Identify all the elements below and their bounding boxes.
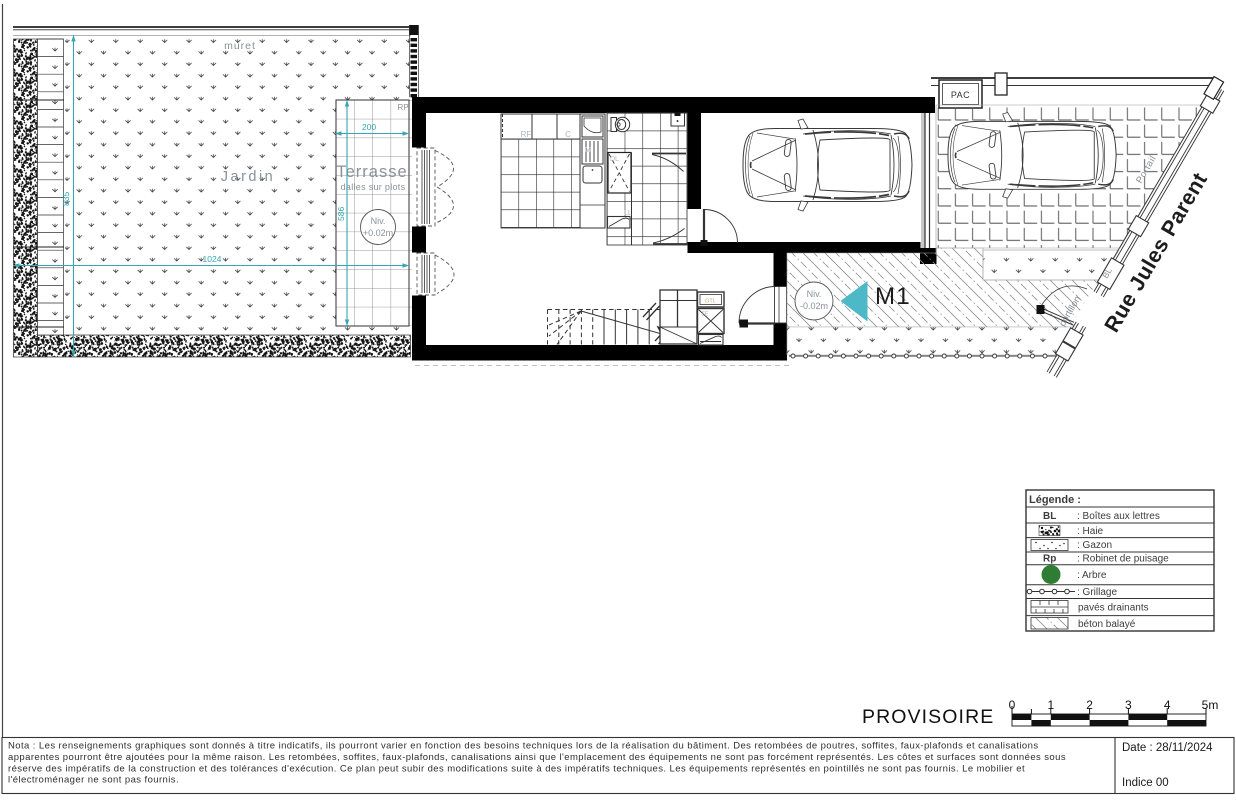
svg-text:: Grillage: : Grillage: [1077, 587, 1117, 598]
svg-text:LL: LL: [624, 210, 632, 217]
svg-text:Date : 28/11/2024: Date : 28/11/2024: [1122, 742, 1213, 754]
svg-text:Légende :: Légende :: [1029, 494, 1081, 506]
svg-text:+0.02m: +0.02m: [363, 228, 393, 238]
svg-text:: Haie: : Haie: [1077, 526, 1104, 537]
svg-text:: Boîtes aux lettres: : Boîtes aux lettres: [1077, 511, 1160, 522]
svg-text:M1: M1: [875, 283, 911, 310]
svg-text:2: 2: [1086, 698, 1093, 712]
svg-text:Indice 00: Indice 00: [1122, 777, 1169, 789]
svg-text:C: C: [565, 130, 571, 139]
svg-text:dalles sur plots: dalles sur plots: [341, 182, 406, 192]
svg-text:1024: 1024: [203, 254, 222, 264]
svg-text:RF: RF: [521, 130, 532, 139]
svg-text:1: 1: [1047, 698, 1054, 712]
svg-text:l'électroménager ne sont pas f: l'électroménager ne sont pas fournis.: [8, 775, 179, 786]
svg-text:PAC: PAC: [951, 90, 970, 100]
svg-text:835: 835: [61, 192, 71, 206]
svg-text:réserve des impératifs de la c: réserve des impératifs de la constructio…: [8, 763, 1025, 774]
svg-text:200: 200: [362, 122, 376, 132]
svg-text:PROVISOIRE: PROVISOIRE: [862, 706, 994, 728]
svg-text:: Robinet de puisage: : Robinet de puisage: [1077, 554, 1169, 565]
svg-text:Rp: Rp: [1043, 554, 1056, 565]
svg-text:RP: RP: [397, 103, 408, 112]
svg-text:-0.02m: -0.02m: [800, 301, 828, 311]
svg-text:Niv.: Niv.: [807, 289, 822, 299]
svg-text:pavés drainants: pavés drainants: [1078, 603, 1149, 614]
svg-text:: Gazon: : Gazon: [1077, 540, 1112, 551]
svg-text:apparentes pourront être ajout: apparentes pourront être ajoutées pour l…: [8, 752, 1066, 763]
svg-text:DL: DL: [610, 156, 619, 163]
svg-text:586: 586: [336, 207, 346, 221]
svg-text:béton balayé: béton balayé: [1078, 619, 1136, 630]
svg-text:TE: TE: [701, 312, 709, 318]
svg-text:3: 3: [1125, 698, 1132, 712]
svg-text:BL: BL: [1043, 511, 1056, 522]
svg-text:: Arbre: : Arbre: [1077, 570, 1107, 581]
svg-text:5m: 5m: [1202, 698, 1219, 712]
svg-text:GTL: GTL: [705, 299, 716, 305]
svg-text:Nota : Les renseignements grap: Nota : Les renseignements graphiques son…: [8, 741, 1039, 752]
svg-text:Jardin: Jardin: [221, 169, 276, 185]
svg-text:0: 0: [1009, 698, 1016, 712]
svg-text:4: 4: [1164, 698, 1171, 712]
svg-text:M: M: [585, 147, 591, 154]
svg-text:Niv.: Niv.: [371, 216, 386, 226]
